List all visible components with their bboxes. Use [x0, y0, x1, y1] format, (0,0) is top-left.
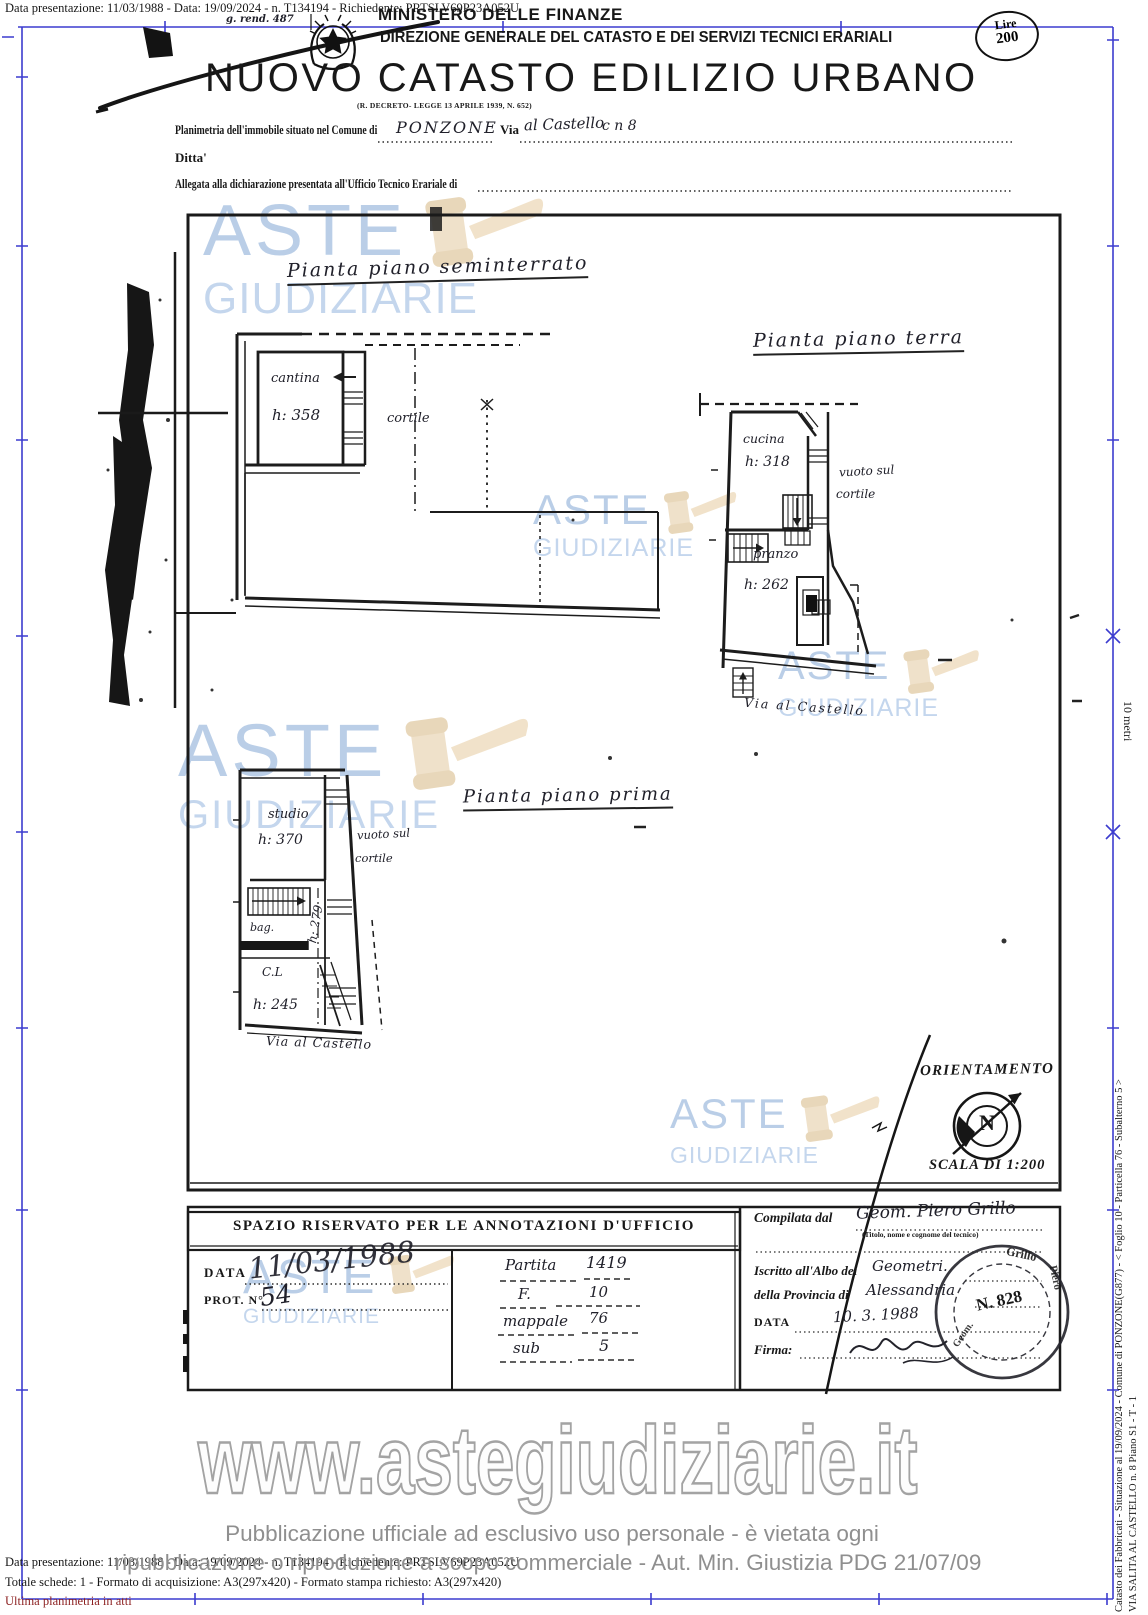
primo-title: Pianta piano prima: [463, 786, 673, 812]
room-height-pranzo: h: 262: [744, 578, 789, 593]
sidebar-address-line: VIA SALITA AL CASTELLO n. 8 Piano S1 - T…: [1128, 1396, 1139, 1612]
allegata-text: Allegata alla dichiarazione presentata a…: [175, 177, 457, 191]
label-vuoto-primo-2: cortile: [355, 852, 393, 864]
direction-title: DIREZIONE GENERALE DEL CATASTO E DEI SER…: [380, 30, 937, 47]
label-vuoto-2: cortile: [836, 488, 875, 501]
compilata-label: Compilata dal: [754, 1211, 832, 1225]
decree-subtitle: (R. DECRETO- LEGGE 13 APRILE 1939, N. 65…: [357, 102, 532, 110]
room-height-cl: h: 245: [253, 998, 298, 1013]
row-sub-value: 5: [599, 1338, 609, 1355]
data-label: DATA: [204, 1266, 247, 1280]
scale-10-metri-label: 10 metri: [1121, 701, 1134, 741]
room-height-cucina: h: 318: [745, 455, 790, 470]
planimetria-text: Planimetria dell'immobile situato nel Co…: [175, 123, 377, 137]
footer-totale: Totale schede: 1 - Formato di acquisizio…: [5, 1576, 501, 1589]
row-foglio-label: F.: [518, 1287, 531, 1303]
street-label-primo: Via al Castello: [266, 1034, 372, 1051]
dust-specks: [107, 299, 1014, 944]
heavy-wall: [240, 941, 308, 950]
prot-label: PROT. N°: [204, 1294, 264, 1307]
row-foglio-value: 10: [589, 1285, 608, 1301]
comune-value: PONZONE: [396, 120, 498, 137]
astegiudiziarie-url-watermark: www.astegiudiziarie.it: [198, 1406, 918, 1516]
prot-value-handwritten: 54: [258, 1281, 293, 1311]
firma-label: Firma:: [754, 1343, 792, 1357]
terra-plan: [700, 393, 876, 697]
provincia-label: della Provincia di: [754, 1288, 849, 1302]
tecnico-subscript: (Titolo, nome e cognome del tecnico): [862, 1231, 979, 1239]
compass-north-letter: N: [979, 1111, 995, 1134]
allegata-label: Allegata alla dichiarazione presentata a…: [175, 177, 551, 191]
annotazioni-header: SPAZIO RISERVATO PER LE ANNOTAZIONI D'UF…: [188, 1219, 740, 1235]
room-label-pranzo: pranzo: [753, 548, 798, 562]
footer-notice-2: ripubblicazione o riproduzione a scopo c…: [115, 1550, 982, 1576]
orientamento-label: ORIENTAMENTO: [920, 1062, 1054, 1080]
document-title: NUOVO CATASTO EDILIZIO URBANO: [205, 57, 978, 99]
header-note: g. rend. 487: [226, 15, 294, 26]
scan-mark: [430, 207, 442, 231]
compilata-data-label: DATA: [754, 1316, 790, 1329]
scribble: [872, 1123, 887, 1131]
signature-stroke: [850, 1339, 953, 1363]
room-label-cucina: cucina: [743, 432, 785, 445]
terra-title: Pianta piano terra: [753, 328, 964, 356]
row-partita-label: Partita: [505, 1258, 556, 1274]
scala-label: SCALA DI 1:200: [929, 1158, 1045, 1173]
sidebar-catasto-line: Catasto dei Fabbricati - Situazione al 1…: [1114, 1079, 1125, 1612]
ministry-title: MINISTERO DELLE FINANZE: [378, 6, 623, 24]
room-height-studio: h: 370: [258, 833, 303, 848]
via-value: al Castello: [524, 116, 605, 135]
ultima-planimetria-link: Ultima planimetria in atti: [5, 1595, 132, 1608]
row-mappale-value: 76: [589, 1311, 608, 1327]
dotted-rules: [245, 142, 1042, 1362]
direction-text: DIREZIONE GENERALE DEL CATASTO E DEI SER…: [380, 30, 892, 47]
label-cortile: cortile: [387, 412, 430, 426]
room-label-studio: studio: [268, 808, 309, 822]
row-partita-value: 1419: [586, 1255, 627, 1272]
scanned-cadastral-document: { "colors": { "frame_blue": "#3c3ccf", "…: [0, 0, 1148, 1615]
label-vuoto-primo-1: vuoto sul: [357, 827, 411, 842]
fireplace-fill: [806, 595, 817, 612]
room-label-cl: C.L: [262, 966, 283, 979]
provincia-handwritten: Alessandria: [866, 1283, 955, 1299]
row-sub-label: sub: [513, 1341, 540, 1357]
albo-handwritten: Geometri.: [872, 1259, 948, 1275]
room-label-bag: bag.: [250, 922, 274, 934]
stair-arrow: [297, 897, 306, 906]
door-arrow: [333, 373, 342, 382]
civico-value: c n 8: [602, 119, 637, 134]
scan-blob: [143, 27, 173, 58]
iscritto-label: Iscritto all'Albo dei: [754, 1264, 857, 1278]
footer-notice-1: Pubblicazione ufficiale ad esclusivo uso…: [225, 1521, 879, 1547]
ditta-label: Ditta': [175, 151, 207, 165]
stair-arrow: [793, 518, 802, 526]
via-label: Via: [500, 123, 519, 137]
label-vuoto-1: vuoto sul: [839, 464, 895, 479]
row-mappale-label: mappale: [503, 1314, 568, 1330]
room-label-cantina: cantina: [271, 372, 320, 386]
room-height-cantina: h: 358: [272, 408, 320, 424]
